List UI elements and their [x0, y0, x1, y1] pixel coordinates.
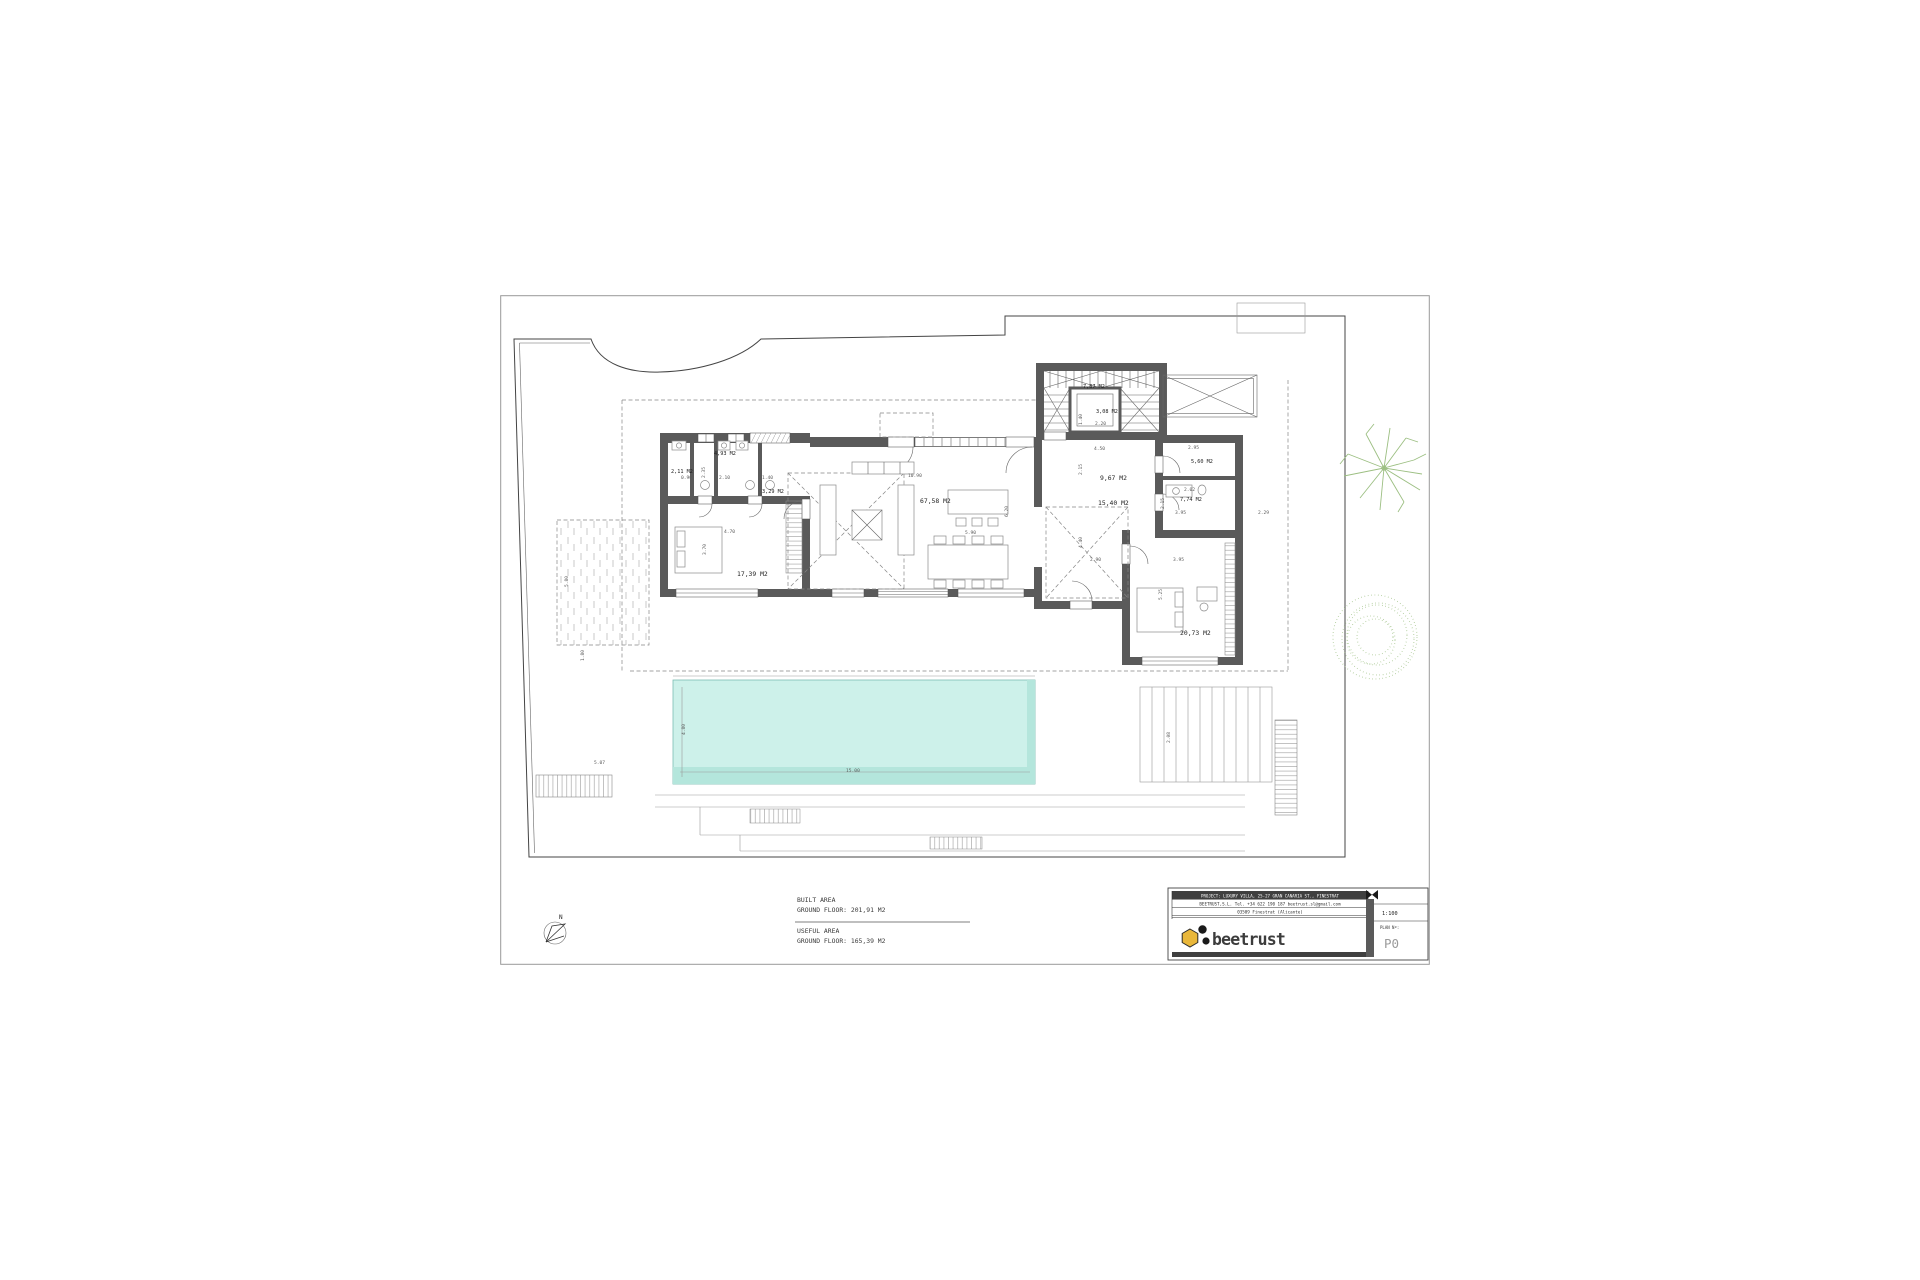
wardrobe	[786, 501, 802, 573]
scale-value: 1:100	[1382, 911, 1398, 917]
built-area-title: BUILT AREA	[797, 896, 836, 904]
room-label: 15,40 M2	[1098, 499, 1129, 507]
dim-label: 2.90	[1090, 557, 1101, 563]
dim-label: 4.40	[1078, 537, 1084, 548]
dim-label: 5.90	[965, 530, 976, 536]
dim-label: 6.20	[1004, 506, 1010, 517]
north-label: N	[559, 914, 563, 921]
dim-label: 2.95	[1188, 445, 1199, 451]
dim-label: 2.15	[1078, 464, 1084, 475]
dim-label: 1.40	[1078, 414, 1084, 425]
left-terrace-paving	[557, 520, 649, 645]
dim-label: 1.40	[762, 475, 773, 481]
stair-hatch-bottom-left	[536, 775, 612, 797]
plan-number-label: PLAN Nº:	[1380, 925, 1399, 930]
dim-label: 2.08	[1166, 732, 1172, 743]
useful-area-value: GROUND FLOOR: 165,39 M2	[797, 937, 886, 945]
room-label: 2,11 M2	[671, 469, 693, 475]
room-label: 67,58 M2	[920, 497, 951, 505]
dim-label: 2.10	[719, 475, 730, 481]
dim-label: 3.95	[1175, 510, 1186, 516]
company-contact: BEETRUST,S.L. Tel. +34 622 190 187 beetr…	[1199, 902, 1341, 907]
dim-label: 0.90	[681, 475, 692, 481]
room-label: 7,87 M2	[1083, 384, 1105, 390]
room-label: 7,74 M2	[1180, 497, 1202, 503]
dim-label: 2.29	[1258, 510, 1269, 516]
logo-dot-icon	[1198, 925, 1206, 933]
pool	[673, 676, 1035, 784]
plan-number: P0	[1384, 936, 1399, 951]
screenshot-canvas: 2,11 M2 4,93 M2 3,29 M2 17,39 M2 67,58 M…	[0, 0, 1920, 1280]
room-label: 17,39 M2	[737, 570, 768, 578]
dim-label: 5.80	[564, 576, 570, 587]
dim-label: 15.00	[846, 768, 860, 774]
floor-plan-drawing: 2,11 M2 4,93 M2 3,29 M2 17,39 M2 67,58 M…	[500, 295, 1430, 965]
room-label: 3,08 M2	[1096, 409, 1118, 415]
stair-hatch-right	[1275, 720, 1297, 815]
dining-table	[928, 545, 1008, 579]
room-label: 9,67 M2	[1100, 474, 1127, 482]
logo-dot-icon	[1202, 937, 1209, 944]
company-address: 03509 Finestrat (Alicante)	[1237, 910, 1303, 915]
logo-wordmark: beetrust	[1212, 930, 1285, 949]
room-label: 3,29 M2	[762, 489, 784, 495]
dim-label: 5.07	[594, 760, 605, 766]
dim-label: 3.70	[702, 544, 708, 555]
pool-edge-band	[1027, 680, 1035, 784]
project-title: PROJECT: LUXURY VILLA, 25-27 GRAN CANARI…	[1201, 893, 1340, 898]
hexagon-icon	[1182, 929, 1198, 947]
dim-label: 2.15	[1160, 498, 1166, 509]
dim-label: 5.00	[806, 534, 812, 545]
dim-label: 4.70	[724, 529, 735, 535]
dim-label: 3.95	[1173, 557, 1184, 563]
kitchen-island	[948, 490, 1008, 514]
master-closet	[1225, 543, 1235, 655]
dim-label: 10.90	[908, 473, 922, 479]
room-label: 5,60 M2	[1191, 459, 1213, 465]
plan-sheet: 2,11 M2 4,93 M2 3,29 M2 17,39 M2 67,58 M…	[500, 295, 1430, 965]
dim-label: 5.25	[1158, 589, 1164, 600]
dim-label: 2.20	[1095, 421, 1106, 427]
dim-label: 4.80	[681, 724, 687, 735]
dim-label: 2.35	[701, 467, 707, 478]
title-block: PROJECT: LUXURY VILLA, 25-27 GRAN CANARI…	[1168, 888, 1428, 960]
room-label: 20,73 M2	[1180, 629, 1211, 637]
dim-label: 4.50	[1094, 446, 1105, 452]
dim-label: 1.80	[580, 650, 586, 661]
room-label: 4,93 M2	[714, 451, 736, 457]
built-area-value: GROUND FLOOR: 201,91 M2	[797, 906, 886, 914]
dim-label: 2.02	[1184, 487, 1195, 493]
useful-area-title: USEFUL AREA	[797, 927, 839, 935]
